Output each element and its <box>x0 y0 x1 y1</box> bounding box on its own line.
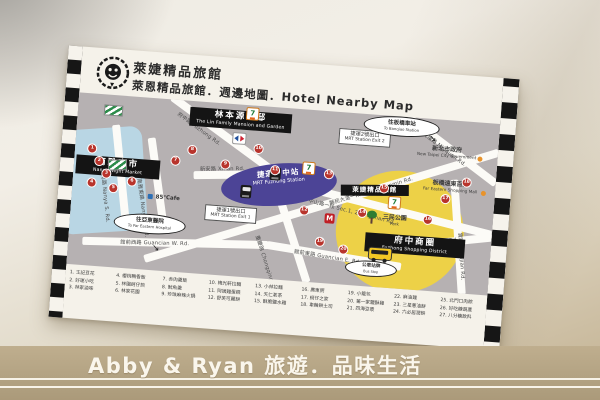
striped-landmark-icon <box>104 104 124 116</box>
carrefour-icon <box>232 132 247 145</box>
hospital-balloon: 往亞東醫院 To Far Eastern Hospital <box>113 211 186 236</box>
mrt-exit1-box: 捷運1號出口 MRT Station Exit 1 <box>204 204 257 223</box>
mos-burger-icon: M <box>324 213 335 224</box>
park-label: 三民公園 Park <box>376 213 413 228</box>
legend-column: 1. 王記豆花 2. 好運小吃 3. 林家滷味 <box>67 269 115 315</box>
seven-eleven-icon: 7 <box>387 196 401 210</box>
photo-background: 萊婕精品旅館 萊恩精品旅館．週邊地圖．Hotel Nearby Map 府中路 … <box>0 0 600 400</box>
cafe-85-label: 85°Cafe <box>147 194 180 202</box>
legend-column: 10. 梅光軒拉麵 11. 阿姨雞蛋糕 12. 舒芙可麗餅 <box>206 280 254 326</box>
food-marker: 12 <box>299 205 310 216</box>
legend-column: 16. 廣東粥 17. 蚵仔之家 18. 車輪餅土司 <box>298 287 346 333</box>
legend-column: 19. 小籠包 20. 第一家鹽酥雞 21. 四海豆漿 <box>345 290 393 336</box>
legend-column: 4. 櫻桃鴨香飯 5. 林園蚵仔煎 6. 林家花園 <box>113 273 161 319</box>
food-marker: 7 <box>170 155 181 166</box>
legend-column: 13. 小林拉麵 14. 天仁茗茶 15. 酥脆鹽水雞 <box>252 283 300 329</box>
legend-column: 25. 北門口肉粽 26. 好吃糖葫蘆 27. 八分糖飲料 <box>437 297 485 343</box>
seven-eleven-icon: 7 <box>246 107 260 121</box>
food-marker: 19 <box>314 236 325 247</box>
city-government-label: 新北市政府 New Taipei City Government <box>414 144 481 161</box>
food-marker: 10 <box>253 144 264 155</box>
striped-landmark-icon <box>108 159 127 171</box>
food-marker: 8 <box>187 145 198 156</box>
bus-icon <box>368 246 393 261</box>
seven-eleven-icon: 7 <box>302 161 316 175</box>
watermark-text: Abby & Ryan 旅遊．品味生活 <box>88 350 422 380</box>
legend-column: 7. 赤肉羹飯 8. 魷魚羹 9. 珍珠麻辣火鍋 <box>159 276 207 322</box>
legend-column: 22. 麻油雞 23. 三星蔥油餅 24. 六必居潤餅 <box>391 294 439 340</box>
map-canvas: 府中路 Fuzhong Rd. 縣民大道一段 Sec.1, Xianmin Rd… <box>66 92 500 295</box>
station-balloon-arrow: ↘ <box>428 135 436 145</box>
poi-dot <box>481 191 486 196</box>
hotel-map-paper: 萊婕精品旅館 萊恩精品旅館．週邊地圖．Hotel Nearby Map 府中路 … <box>48 45 519 350</box>
hospital-balloon-arrow: ↘ <box>151 244 159 254</box>
train-icon <box>240 185 252 199</box>
lion-logo-icon <box>94 54 133 93</box>
hotel-marker-label: 萊婕精品旅館 <box>341 185 409 197</box>
